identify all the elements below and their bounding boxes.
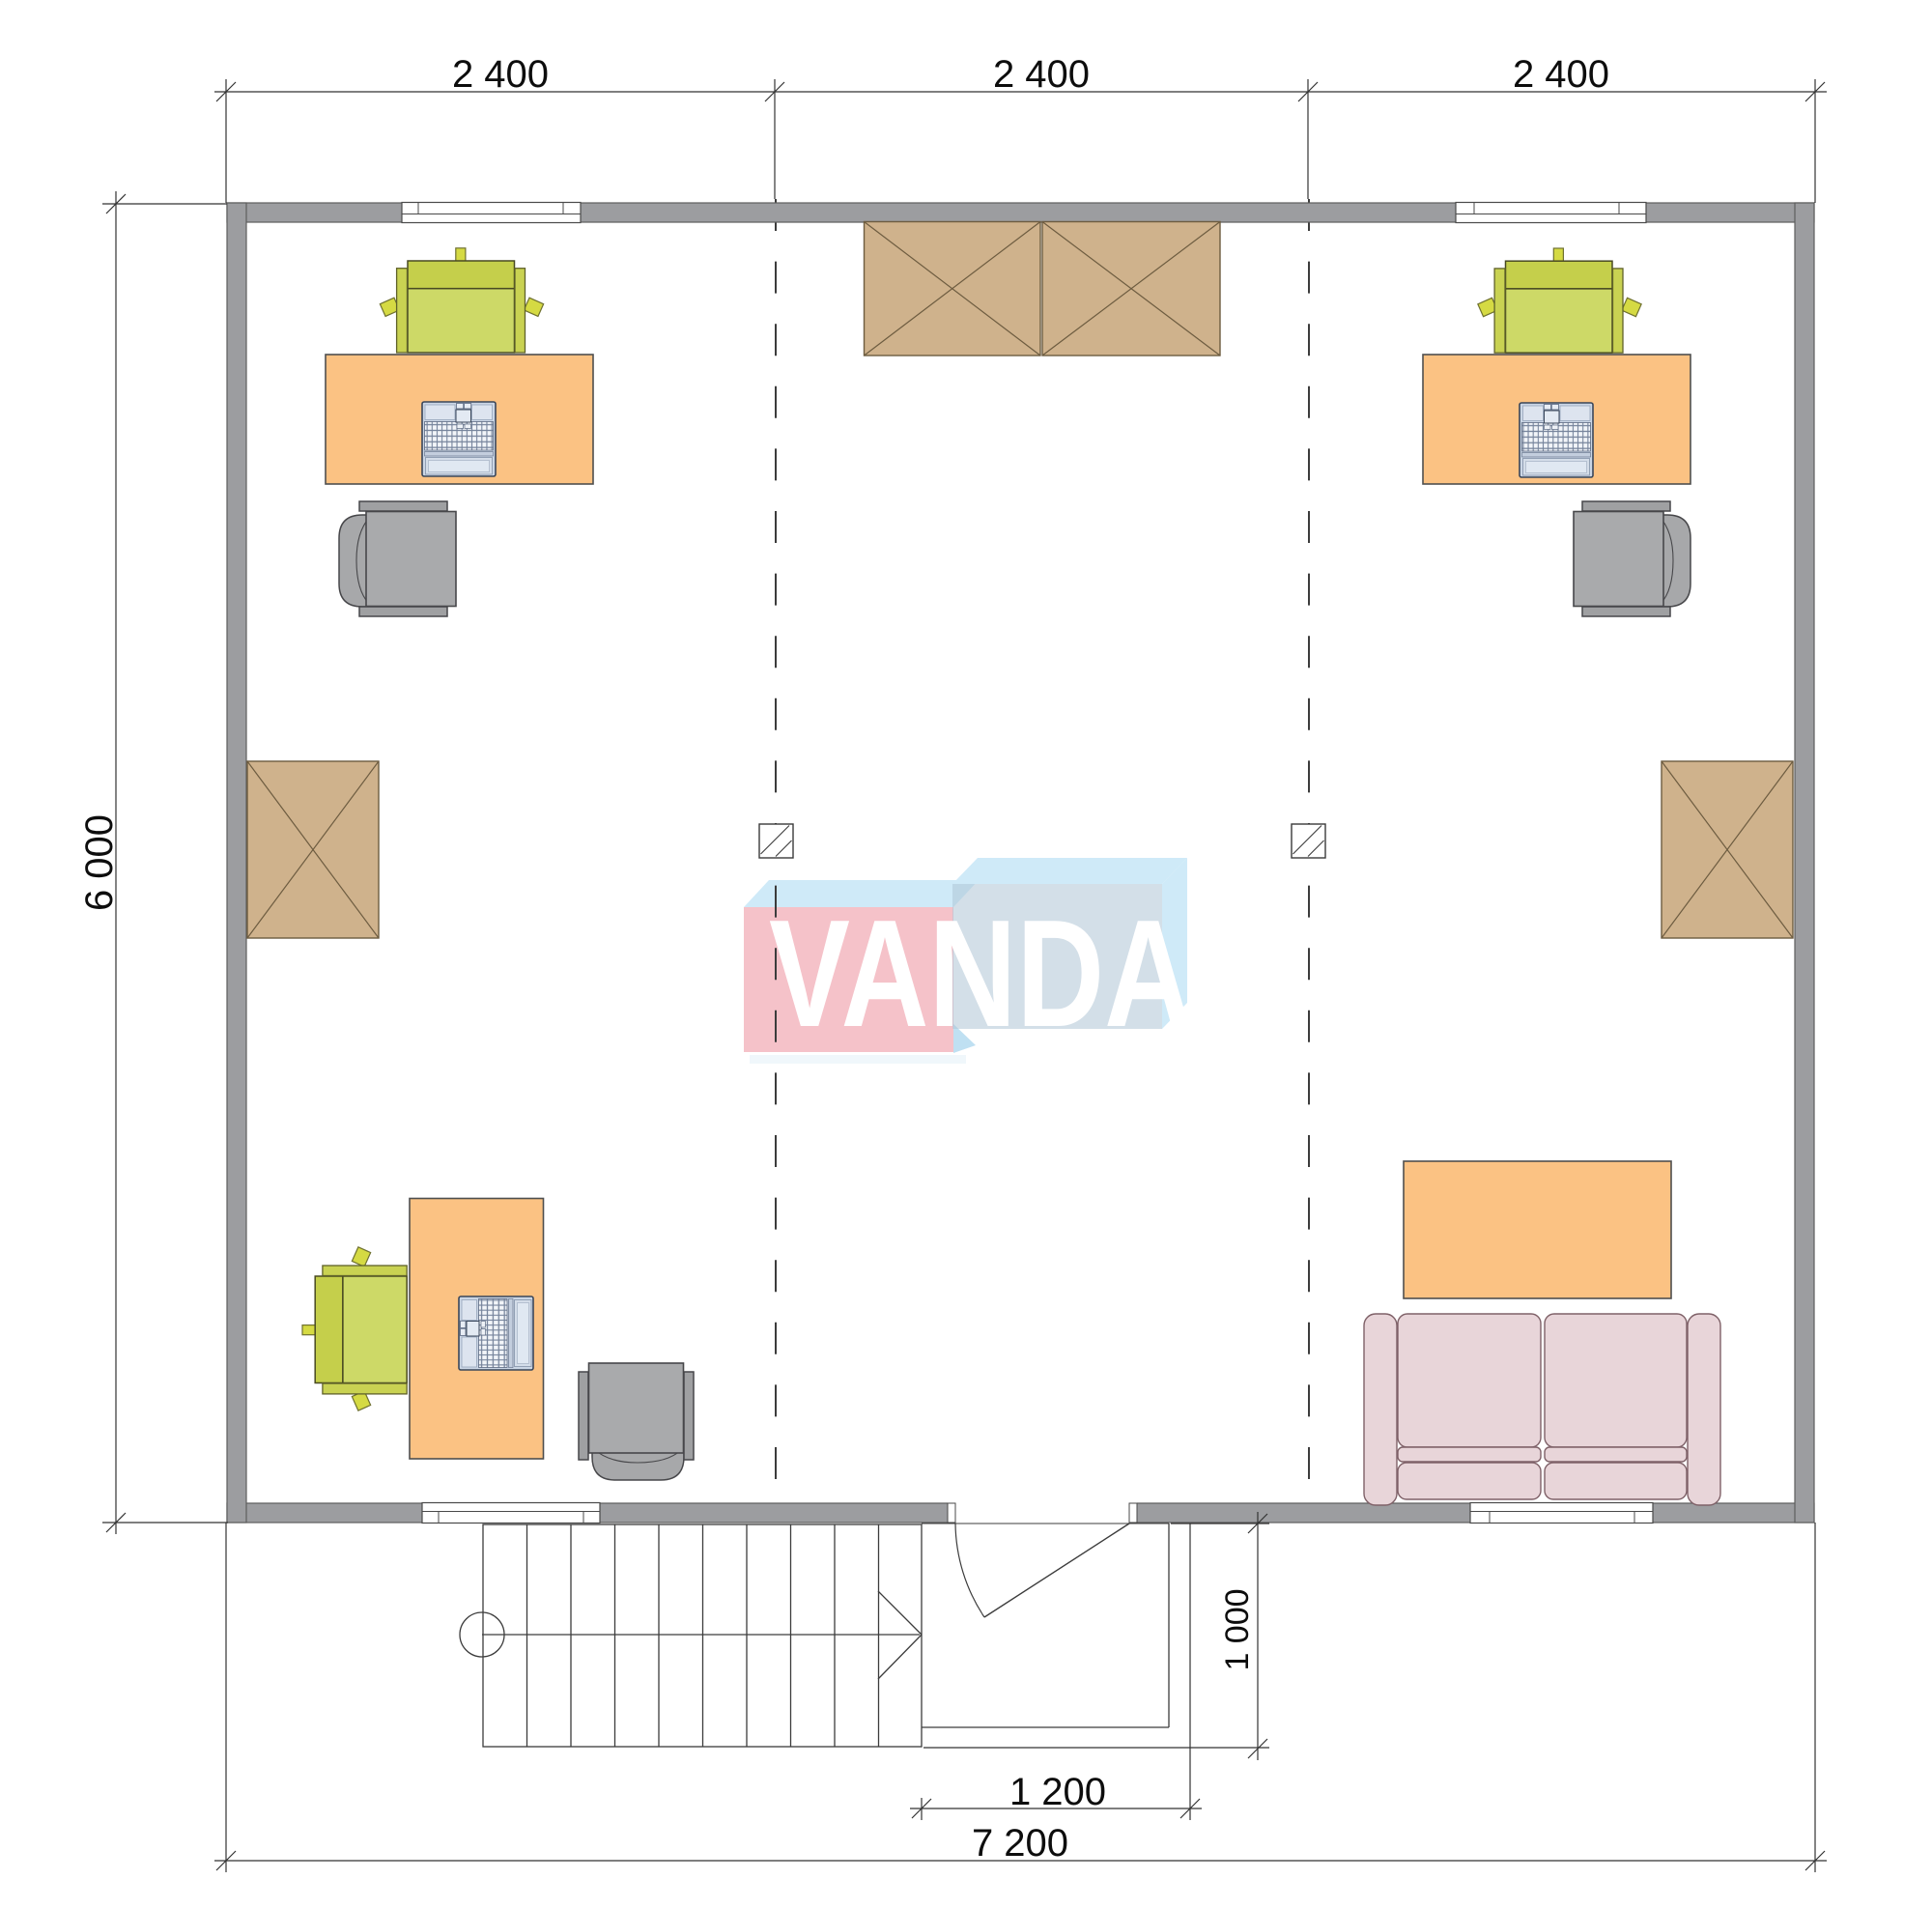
svg-text:VANDA: VANDA	[769, 889, 1192, 1059]
svg-text:2 400: 2 400	[1513, 53, 1609, 96]
svg-text:1 000: 1 000	[1219, 1588, 1256, 1670]
svg-text:2 400: 2 400	[993, 53, 1090, 96]
svg-text:1 200: 1 200	[1009, 1771, 1106, 1813]
svg-text:7 200: 7 200	[972, 1822, 1068, 1865]
svg-text:6 000: 6 000	[78, 814, 121, 911]
svg-text:2 400: 2 400	[452, 53, 549, 96]
